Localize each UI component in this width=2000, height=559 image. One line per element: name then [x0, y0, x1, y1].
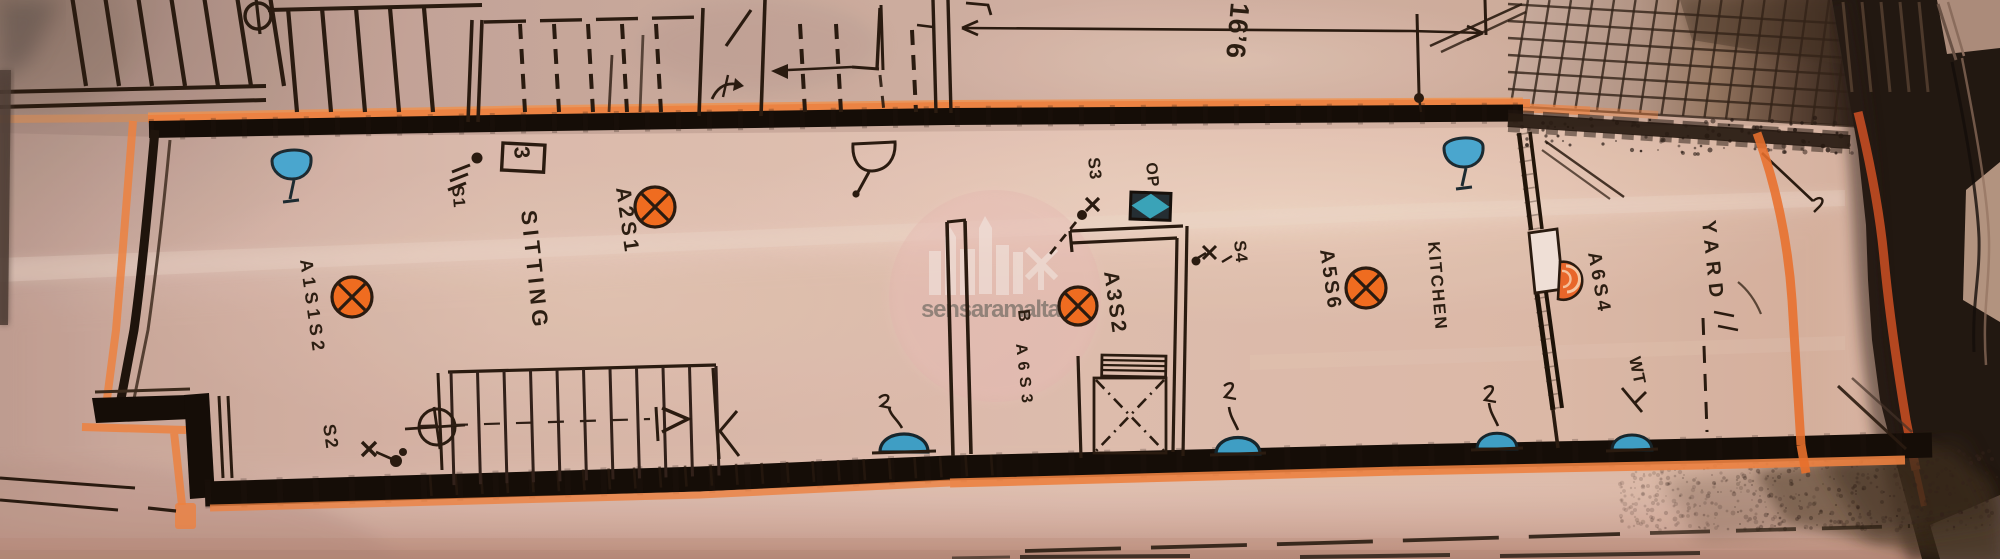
- svg-text:3: 3: [509, 145, 535, 161]
- svg-text:B: B: [1014, 308, 1034, 323]
- svg-text:S1: S1: [448, 185, 469, 209]
- svg-text:S3: S3: [1084, 156, 1105, 181]
- svg-text:S4: S4: [1230, 239, 1251, 264]
- svg-text:S2: S2: [319, 423, 342, 452]
- svg-text:sensaramalta: sensaramalta: [921, 296, 1062, 323]
- svg-text:16’6: 16’6: [1220, 1, 1255, 60]
- svg-text:OP: OP: [1142, 162, 1162, 189]
